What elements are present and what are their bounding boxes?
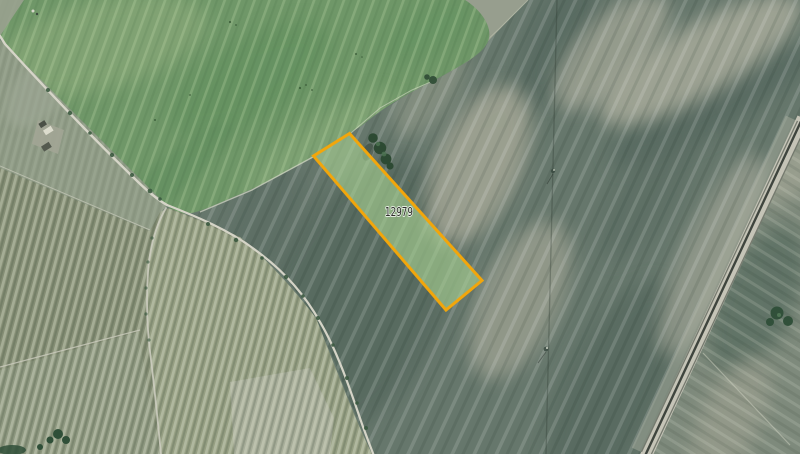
parcel-label: 12979: [385, 204, 413, 219]
map-viewport[interactable]: 12979: [0, 0, 800, 454]
